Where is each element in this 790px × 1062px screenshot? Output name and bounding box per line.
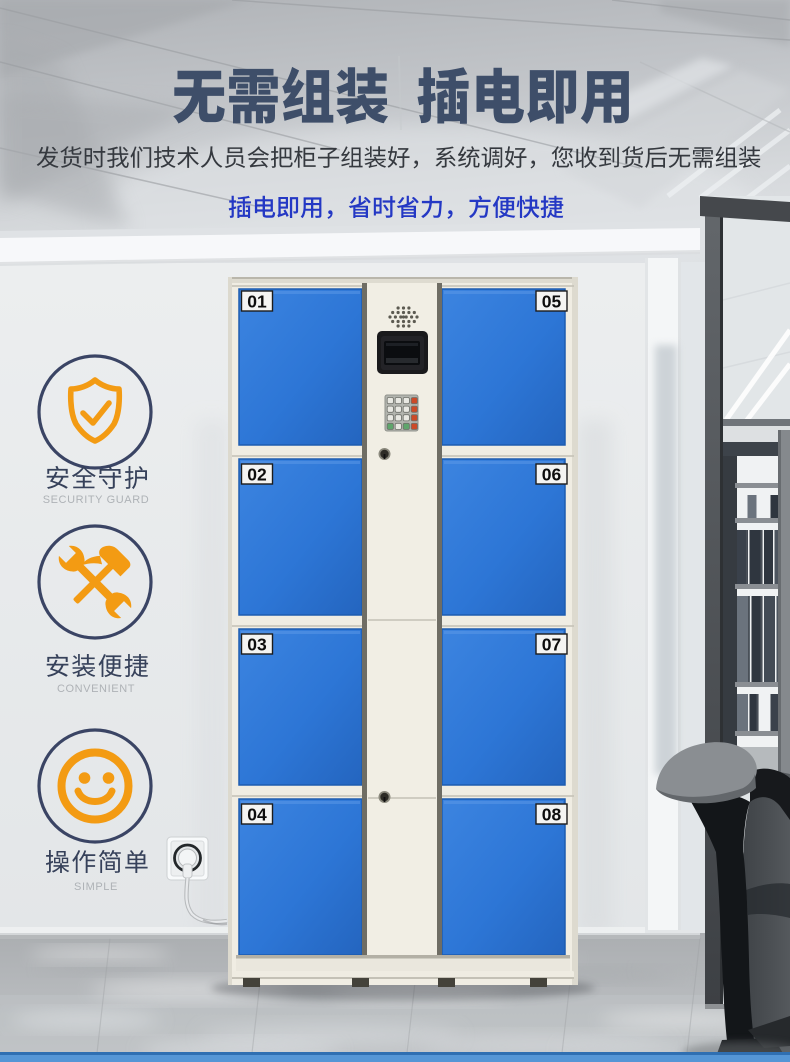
svg-text:08: 08 [542,805,562,825]
svg-text:07: 07 [542,635,561,655]
svg-text:06: 06 [542,465,562,485]
svg-text:01: 01 [247,292,267,312]
svg-text:SIMPLE: SIMPLE [74,881,118,893]
svg-text:02: 02 [247,465,267,485]
svg-text:05: 05 [542,292,562,312]
svg-text:CONVENIENT: CONVENIENT [57,683,135,695]
svg-text:03: 03 [247,635,267,655]
svg-text:04: 04 [247,805,267,825]
svg-text:SECURITY GUARD: SECURITY GUARD [43,494,150,506]
